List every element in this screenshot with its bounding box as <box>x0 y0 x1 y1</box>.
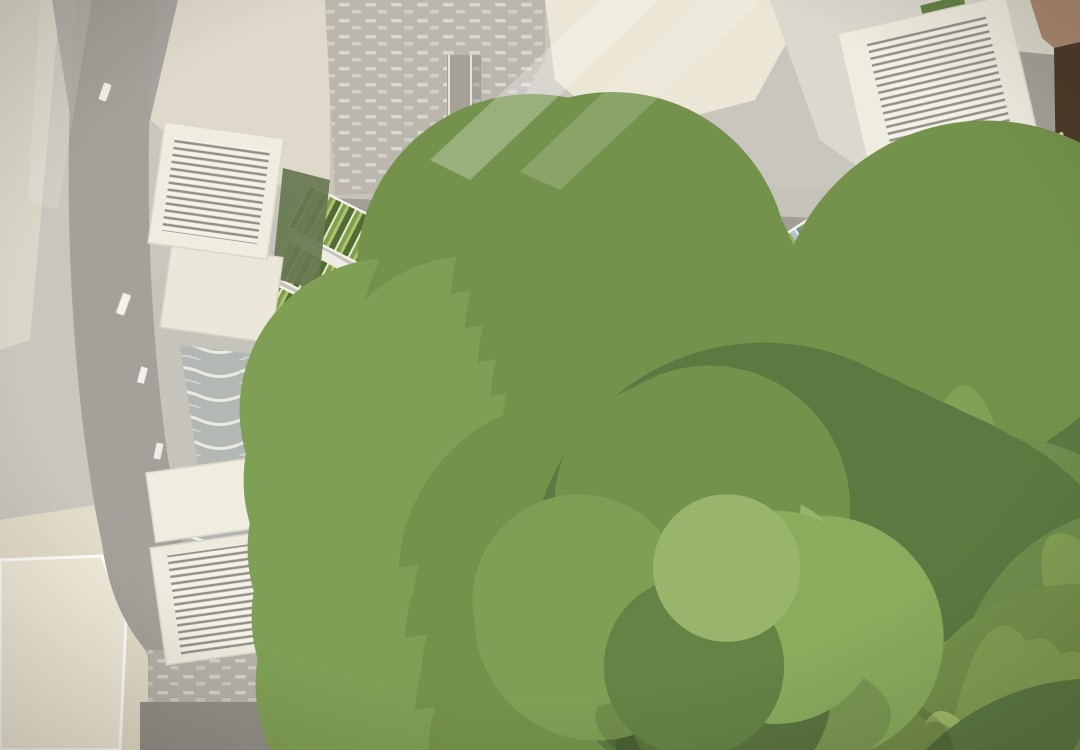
vignette <box>0 0 1080 750</box>
model-aerial-view <box>0 0 1080 750</box>
photo-overlays <box>0 0 1080 750</box>
architectural-model-photo <box>0 0 1080 750</box>
